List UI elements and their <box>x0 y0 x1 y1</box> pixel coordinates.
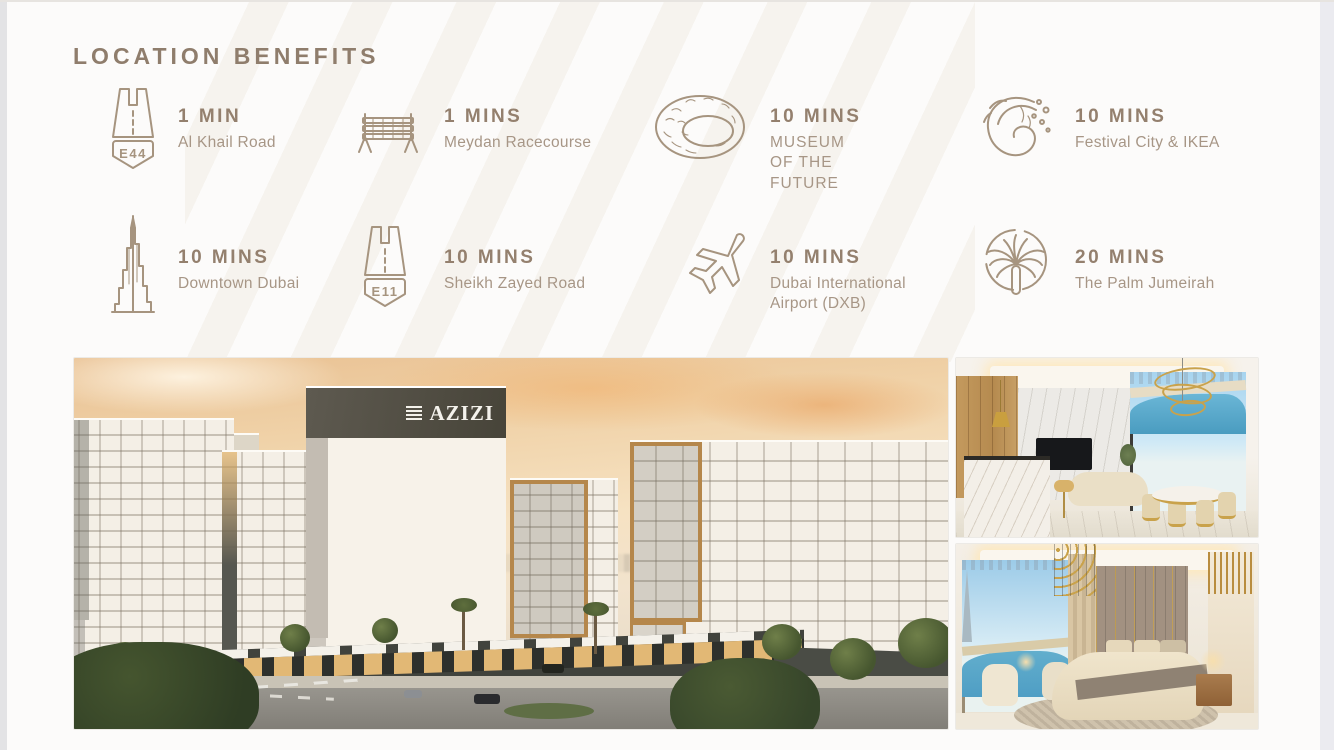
page: { "section": { "heading": "LOCATION BENE… <box>0 0 1334 750</box>
benefit-place: MUSEUM OF THE FUTURE <box>770 133 866 194</box>
hero-image-development-exterior[interactable]: AZIZI <box>73 357 949 730</box>
benefit-place: Dubai International Airport (DXB) <box>770 274 928 315</box>
benefit-place: Al Khail Road <box>178 133 276 153</box>
azizi-logo-icon <box>406 406 422 421</box>
section-title: LOCATION BENEFITS <box>73 43 380 70</box>
window-left-edge <box>0 2 7 750</box>
benefit-time: 10 MINS <box>444 247 585 269</box>
azizi-building-sign: AZIZI <box>306 388 506 438</box>
festival-city-icon <box>976 88 1054 166</box>
benefit-time: 20 MINS <box>1075 247 1214 269</box>
burj-khalifa-silhouette <box>962 570 972 642</box>
road-e11-icon: E11 <box>356 224 414 308</box>
thumbnail-living-room-interior[interactable] <box>955 357 1259 538</box>
road-e44-icon: E44 <box>104 86 162 170</box>
benefit-place: Downtown Dubai <box>178 274 299 294</box>
svg-text:E11: E11 <box>372 284 399 299</box>
benefit-time: 1 MIN <box>178 106 276 128</box>
museum-of-the-future-icon <box>652 92 748 162</box>
benefit-time: 10 MINS <box>178 247 299 269</box>
airplane-icon <box>684 230 748 294</box>
benefit-place: Meydan Racecourse <box>444 133 591 153</box>
benefit-time: 10 MINS <box>1075 106 1220 128</box>
racecourse-fence-icon <box>356 110 420 156</box>
benefit-time: 10 MINS <box>770 106 866 128</box>
burj-khalifa-icon <box>108 214 158 318</box>
thumbnail-bedroom-interior[interactable] <box>955 543 1259 730</box>
scrollbar-track[interactable] <box>1320 2 1334 750</box>
svg-text:E44: E44 <box>119 146 147 161</box>
palm-jumeirah-icon <box>982 228 1050 302</box>
benefit-place: The Palm Jumeirah <box>1075 274 1214 294</box>
benefit-time: 1 MINS <box>444 106 591 128</box>
benefit-place: Festival City & IKEA <box>1075 133 1220 153</box>
benefit-place: Sheikh Zayed Road <box>444 274 585 294</box>
benefit-time: 10 MINS <box>770 247 928 269</box>
